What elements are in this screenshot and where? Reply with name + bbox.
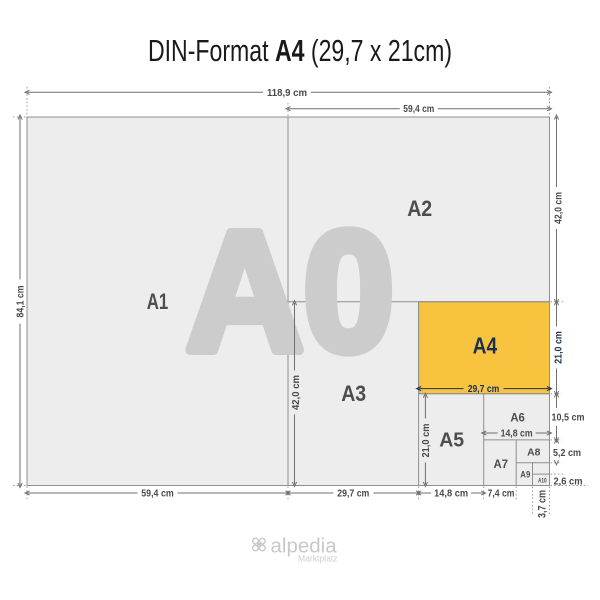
svg-text:14,8 cm: 14,8 cm: [434, 489, 468, 500]
svg-text:7,4 cm: 7,4 cm: [488, 489, 515, 500]
svg-text:A7: A7: [494, 457, 509, 471]
svg-text:10,5 cm: 10,5 cm: [552, 412, 585, 423]
svg-text:A10: A10: [538, 479, 547, 485]
svg-text:A5: A5: [439, 430, 464, 452]
svg-text:29,7 cm: 29,7 cm: [337, 489, 369, 500]
svg-text:A1: A1: [147, 289, 169, 314]
svg-text:42,0 cm: 42,0 cm: [291, 375, 302, 410]
svg-text:21,0 cm: 21,0 cm: [421, 423, 432, 457]
svg-text:A4: A4: [473, 332, 498, 358]
svg-text:2,6 cm: 2,6 cm: [554, 476, 583, 487]
svg-text:59,4 cm: 59,4 cm: [141, 489, 174, 500]
svg-text:DIN-Format A4 (29,7 x 21cm): DIN-Format A4 (29,7 x 21cm): [148, 33, 452, 68]
svg-text:A0: A0: [186, 197, 394, 387]
svg-text:21,0 cm: 21,0 cm: [554, 331, 565, 364]
svg-text:3,7 cm: 3,7 cm: [537, 490, 549, 518]
svg-text:A9: A9: [520, 470, 530, 480]
svg-text:29,7 cm: 29,7 cm: [468, 384, 500, 395]
svg-text:14,8 cm: 14,8 cm: [501, 429, 533, 440]
svg-text:5,2 cm: 5,2 cm: [553, 448, 581, 459]
svg-text:A3: A3: [341, 381, 366, 406]
svg-text:A6: A6: [510, 410, 525, 424]
svg-text:Marktplatz: Marktplatz: [298, 554, 338, 565]
svg-text:A8: A8: [527, 447, 541, 458]
svg-text:84,1 cm: 84,1 cm: [16, 285, 27, 317]
svg-text:59,4 cm: 59,4 cm: [403, 104, 434, 115]
svg-text:A2: A2: [407, 196, 432, 221]
svg-text:42,0 cm: 42,0 cm: [554, 192, 565, 224]
svg-text:118,9 cm: 118,9 cm: [267, 88, 307, 99]
